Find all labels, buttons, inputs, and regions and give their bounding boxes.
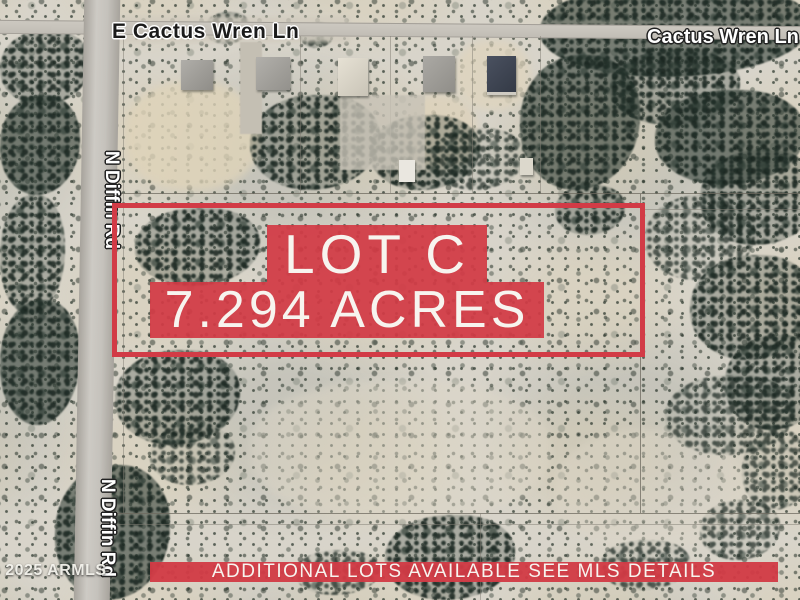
parcel-line — [540, 36, 541, 193]
driveway — [340, 95, 425, 170]
house — [423, 56, 455, 92]
lot-title: LOT C — [267, 225, 487, 282]
house — [181, 60, 213, 90]
parcel-line — [472, 36, 473, 193]
dirt-patch — [250, 380, 550, 520]
parcel-line — [115, 193, 800, 194]
armls-watermark: © 2025 ARMLS — [0, 562, 107, 580]
house — [487, 56, 516, 95]
parcel-line — [300, 36, 301, 193]
road-label-e-cactus-wren-ln: E Cactus Wren Ln — [112, 20, 299, 44]
vegetation-patch — [742, 430, 800, 510]
mls-banner: ADDITIONAL LOTS AVAILABLE SEE MLS DETAIL… — [150, 562, 778, 582]
aerial-listing-image: E Cactus Wren Ln Cactus Wren Ln N Diffin… — [0, 0, 800, 600]
house — [256, 57, 290, 90]
parcel-line — [480, 513, 481, 600]
road-label-cactus-wren-ln: Cactus Wren Ln — [647, 26, 799, 49]
shed — [520, 158, 533, 175]
parcel-line — [112, 513, 800, 514]
house — [338, 58, 368, 96]
parcel-line — [645, 209, 800, 210]
lot-acreage: 7.294 ACRES — [150, 282, 544, 338]
parcel-line — [112, 524, 800, 525]
shed — [399, 160, 415, 182]
